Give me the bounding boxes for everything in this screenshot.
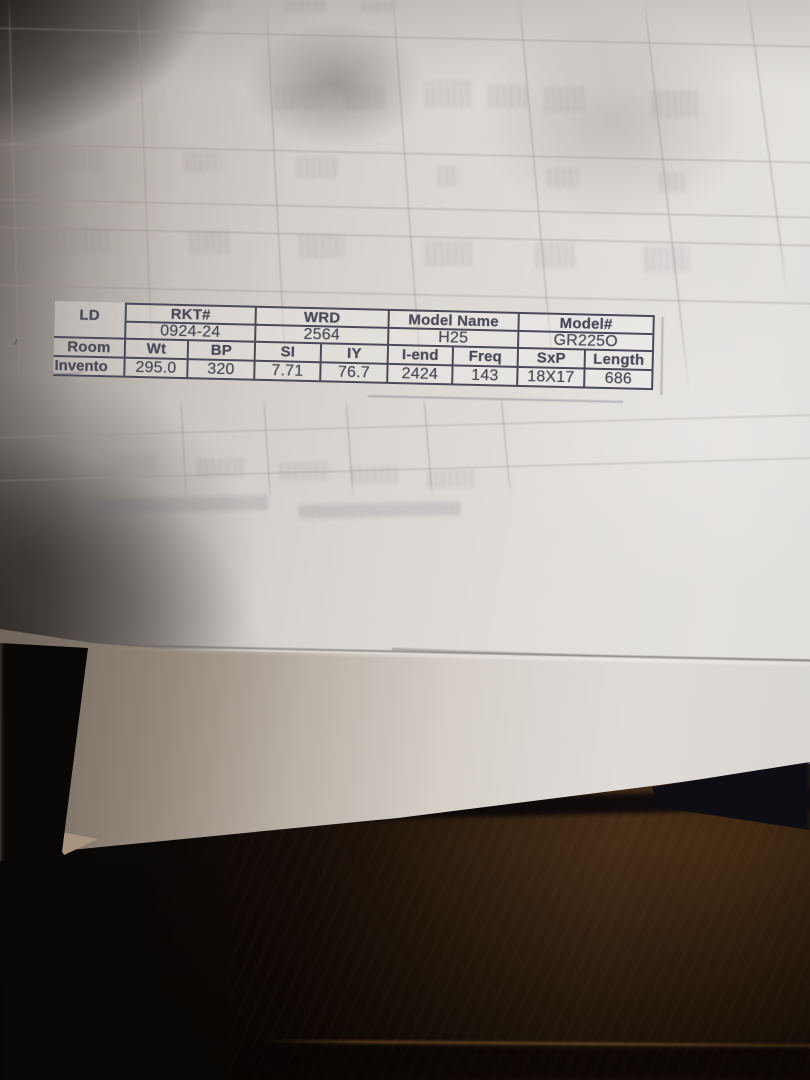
cell-si-value: 7.71: [255, 362, 321, 383]
cell-wt-header: Wt: [126, 340, 189, 360]
cell-bp-header: BP: [189, 341, 256, 362]
cell-length-header: Length: [586, 351, 654, 372]
photo-scene: LD Room Invento RKT# WRD Model Name Mode…: [0, 0, 810, 1080]
cell-room-label: Room: [54, 338, 126, 359]
cell-length-value: 686: [585, 370, 653, 391]
cell-si-header: SI: [256, 343, 322, 364]
spec-table: LD Room Invento RKT# WRD Model Name Mode…: [53, 301, 655, 390]
cell-freq-value: 143: [453, 366, 518, 387]
cell-wt-value: 295.0: [125, 359, 188, 379]
cell-sxp-value: 18X17: [518, 368, 585, 389]
cell-iy-value: 76.7: [321, 363, 388, 384]
cell-freq-header: Freq: [454, 347, 519, 368]
cell-iend-header: I-end: [389, 346, 454, 367]
cell-iend-value: 2424: [388, 365, 453, 386]
cell-sxp-header: SxP: [519, 349, 586, 370]
table-front-shadow: [240, 1047, 810, 1080]
cell-iy-header: IY: [322, 344, 389, 365]
cell-ld-label: LD: [54, 301, 127, 340]
cell-bp-value: 320: [188, 360, 255, 381]
